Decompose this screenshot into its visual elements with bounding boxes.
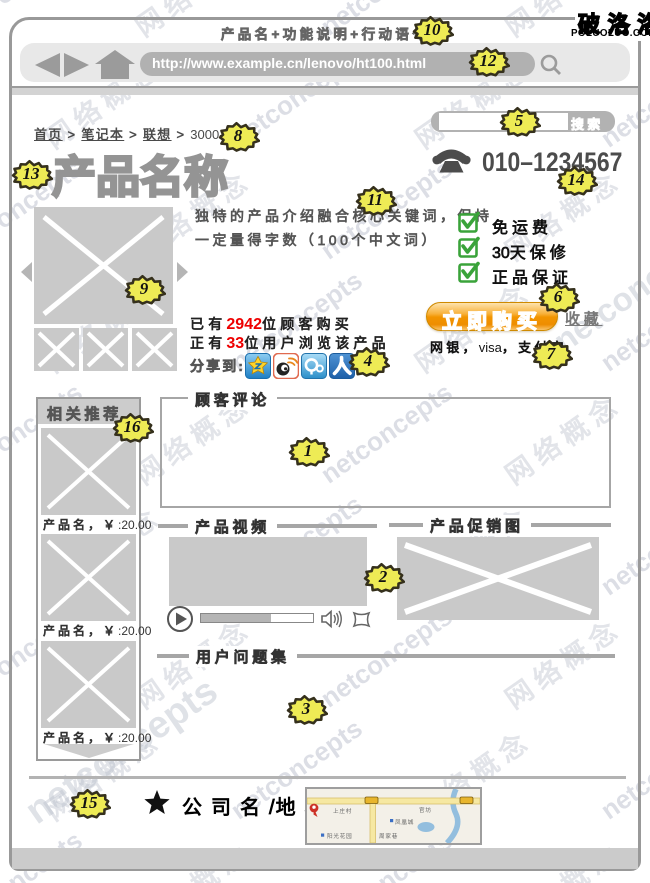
svg-text:官坊: 官坊 [419,806,432,814]
svg-text:上庄村: 上庄村 [333,807,352,815]
svg-text:阳光花园: 阳光花园 [327,832,353,840]
svg-text:凤凰城: 凤凰城 [395,819,414,826]
svg-text:周家巷: 周家巷 [379,832,398,840]
